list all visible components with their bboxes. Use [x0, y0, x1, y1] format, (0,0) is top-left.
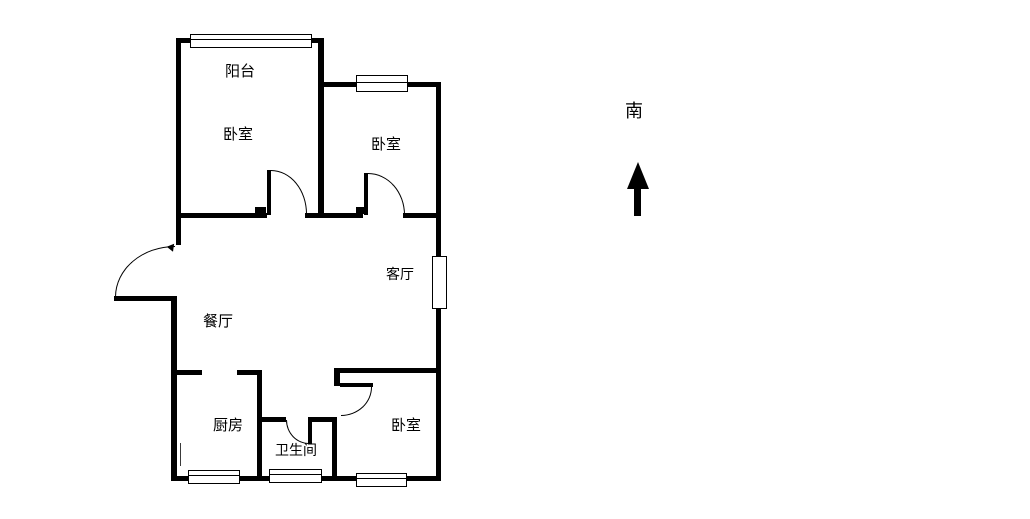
kitchen-label: 厨房	[213, 418, 243, 433]
wall-right-lower	[436, 309, 441, 481]
wall-mid-column	[318, 38, 324, 218]
bedroom-bottom-right-label: 卧室	[391, 418, 421, 433]
wall-bathroom-top-left	[262, 417, 286, 422]
wall-bedrooms-bottom-b	[305, 213, 363, 218]
balcony-window	[190, 34, 312, 48]
bathroom-door-arc	[286, 420, 309, 444]
entry-door-arc	[115, 246, 175, 297]
bedroom3-window	[356, 473, 407, 487]
wall-kitchen-bathroom	[257, 370, 262, 481]
living-room-window	[432, 256, 447, 309]
dining-room-label: 餐厅	[203, 314, 233, 329]
kitchen-window	[188, 470, 240, 484]
bedroom2-window-pane-line	[357, 82, 407, 83]
bathroom-window	[269, 469, 322, 483]
bedroom1-door-panel	[267, 170, 271, 215]
bedroom2-window	[356, 75, 408, 92]
wall-bedrooms-bottom-a	[176, 213, 267, 218]
wall-bedrooms-bottom-c	[403, 213, 441, 218]
wall-right-upper	[436, 82, 441, 256]
bedroom3-window-pane-line	[357, 478, 406, 479]
door-jamb-left	[255, 207, 266, 214]
bedroom3-door-arc	[341, 387, 372, 416]
balcony-label: 阳台	[225, 64, 255, 79]
wall-left-lower	[171, 297, 177, 481]
compass-south-label: 南	[625, 102, 643, 120]
bedroom-top-right-label: 卧室	[371, 137, 401, 152]
wall-bathroom-bedroom	[332, 417, 337, 481]
bathroom-door-panel	[308, 419, 312, 444]
entry-door-panel	[114, 296, 177, 301]
bathroom-window-pane-line	[270, 474, 321, 475]
compass-arrow-head	[627, 162, 649, 189]
bedroom3-door-panel	[340, 383, 373, 387]
living-room-label: 客厅	[386, 267, 414, 281]
floorplan-canvas: 阳台 卧室 卧室 客厅 餐厅 厨房 卫生间 卧室 南	[0, 0, 1030, 519]
compass-arrow-shaft	[634, 187, 641, 216]
wall-bedroom2-top-left	[318, 82, 358, 87]
bedroom1-door-arc	[271, 170, 307, 214]
kitchen-window-pane-line	[189, 475, 239, 476]
wall-kitchen-top-left	[171, 370, 202, 375]
kitchen-detail-line	[180, 443, 181, 466]
bedroom-top-left-label: 卧室	[223, 127, 253, 142]
wall-bedroom3-top	[334, 368, 441, 373]
bedroom2-door-arc	[368, 173, 405, 215]
balcony-window-pane-line	[191, 39, 311, 40]
bedroom2-door-panel	[364, 173, 368, 215]
bathroom-label: 卫生间	[275, 443, 317, 457]
